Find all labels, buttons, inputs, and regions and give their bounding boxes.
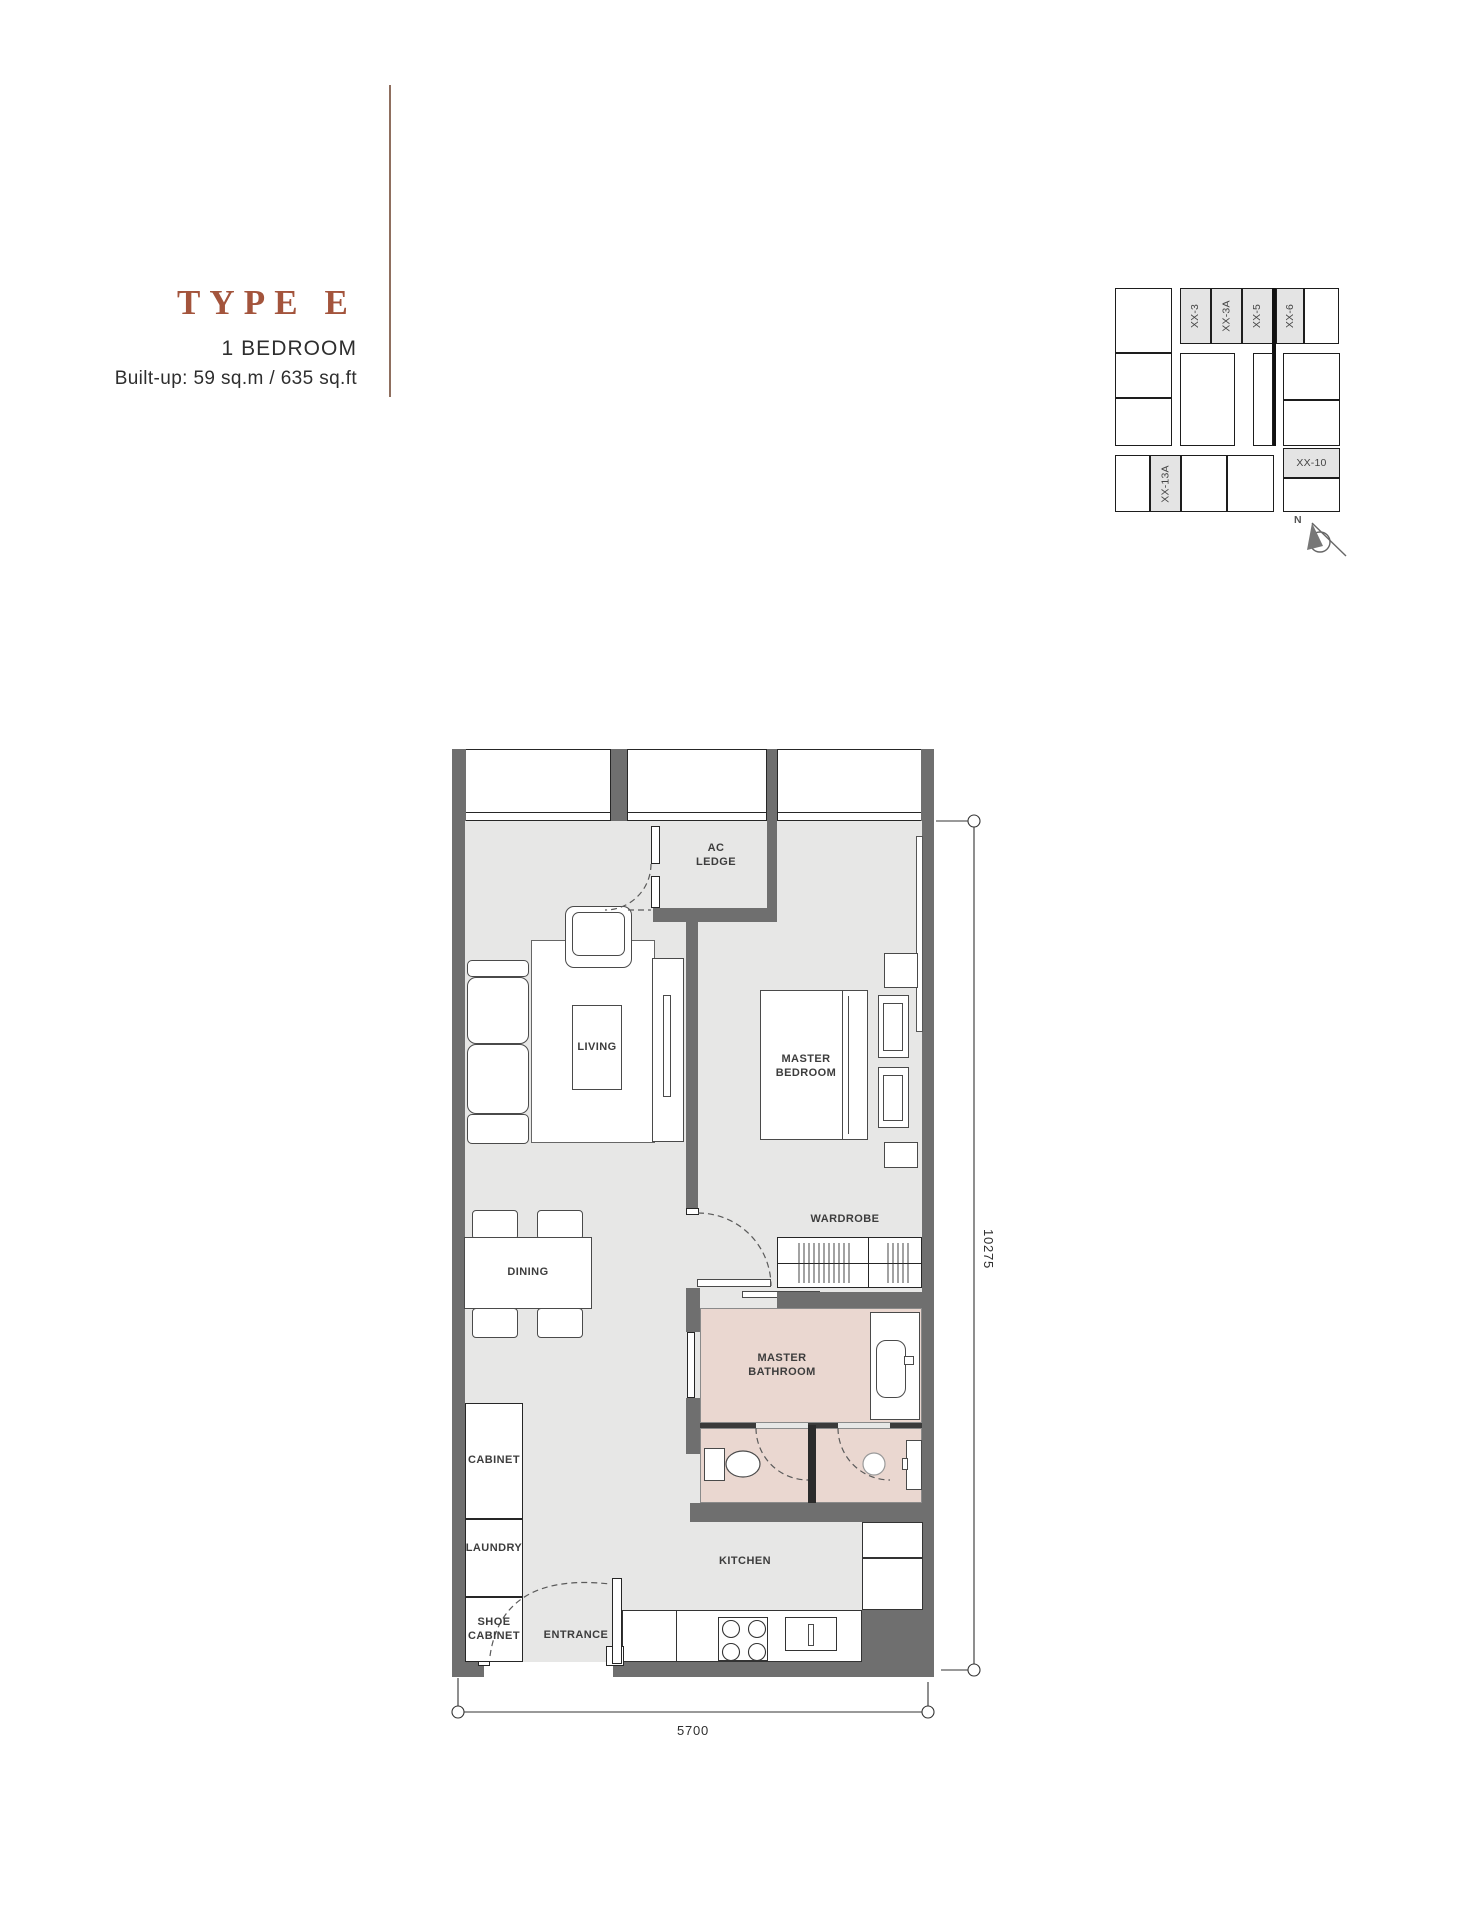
dimension-height: 10275 xyxy=(981,1218,996,1280)
key-plan-cell xyxy=(1115,288,1172,353)
builtup-area: Built-up: 59 sq.m / 635 sq.ft xyxy=(0,368,357,390)
label-kitchen: KITCHEN xyxy=(699,1554,791,1570)
sofa-armrest xyxy=(467,1114,529,1144)
wall-end-cap xyxy=(686,1208,699,1215)
bathroom-wall-bottom xyxy=(690,1503,934,1522)
header-divider xyxy=(389,85,391,397)
kitchen-tall-unit xyxy=(862,1558,923,1610)
dining-chair xyxy=(537,1210,583,1240)
bathroom-door-leaf xyxy=(687,1332,695,1398)
counter-divider xyxy=(676,1611,677,1661)
key-plan-unit-label: XX-5 xyxy=(1252,304,1264,328)
shower-divider-wall xyxy=(808,1425,816,1505)
window-band xyxy=(465,812,611,821)
key-plan-unit-label: XX-13A xyxy=(1160,465,1172,502)
key-plan-cell xyxy=(1253,353,1273,446)
label-ac-ledge: AC LEDGE xyxy=(666,841,766,871)
facade-panel xyxy=(627,749,767,813)
key-plan-unit-xx3a: XX-3A xyxy=(1211,288,1242,344)
north-compass-icon xyxy=(1307,523,1346,556)
key-plan-unit-label: XX-3 xyxy=(1190,304,1202,328)
nightstand-top xyxy=(883,1003,903,1051)
facade-pillar xyxy=(921,749,934,822)
label-living: LIVING xyxy=(572,1005,622,1090)
key-plan-cell xyxy=(1283,400,1340,446)
page-title: TYPE E xyxy=(0,283,357,323)
nightstand-top xyxy=(883,1075,903,1121)
entrance-door-leaf xyxy=(612,1578,622,1664)
bedroom-count: 1 BEDROOM xyxy=(0,337,357,361)
facade-pillar xyxy=(611,749,627,822)
key-plan-unit-xx10: XX-10 xyxy=(1283,448,1340,478)
kitchen-tall-unit xyxy=(862,1522,923,1558)
sink-faucet xyxy=(808,1624,814,1646)
dining-chair xyxy=(472,1210,518,1240)
bathroom-wall xyxy=(777,1292,922,1308)
armchair-seat xyxy=(572,912,625,956)
wall-right xyxy=(922,821,934,1677)
dining-chair xyxy=(537,1308,583,1338)
key-plan-unit-label: XX-3A xyxy=(1221,300,1233,331)
facade-panel xyxy=(465,749,611,813)
key-plan-cell xyxy=(1181,455,1227,512)
ac-ledge-wall xyxy=(767,821,777,921)
window-band xyxy=(777,812,922,821)
label-laundry: LAUNDRY xyxy=(461,1519,527,1579)
vanity-faucet xyxy=(904,1356,914,1365)
facade-pillar xyxy=(452,749,466,822)
stove xyxy=(718,1617,768,1661)
label-wardrobe: WARDROBE xyxy=(795,1212,895,1228)
shower-knob xyxy=(902,1458,908,1470)
north-label: N xyxy=(1294,514,1302,526)
toilet-tank xyxy=(704,1448,725,1481)
sofa-cushion xyxy=(467,977,529,1044)
key-plan-cell xyxy=(1180,353,1235,446)
bedroom-window xyxy=(916,836,923,1032)
label-cabinet: CABINET xyxy=(465,1403,523,1519)
label-master-bathroom: MASTER BATHROOM xyxy=(718,1350,846,1381)
label-master-bedroom: MASTER BEDROOM xyxy=(746,1051,866,1082)
dimension-width: 5700 xyxy=(643,1723,743,1738)
key-plan-cell xyxy=(1304,288,1339,344)
key-plan-cell xyxy=(1227,455,1274,512)
key-plan-unit-label: XX-10 xyxy=(1296,457,1326,469)
label-dining: DINING xyxy=(464,1237,592,1309)
shower-fixture xyxy=(906,1440,922,1490)
bedroom-shelf xyxy=(884,953,918,988)
vanity-basin xyxy=(876,1340,906,1398)
key-plan-cell xyxy=(1115,353,1172,398)
key-plan-unit-xx5: XX-5 xyxy=(1242,288,1273,344)
label-entrance: ENTRANCE xyxy=(530,1628,622,1644)
key-plan-cell xyxy=(1283,478,1340,512)
sofa-armrest xyxy=(467,960,529,977)
key-plan-unit-label: XX-6 xyxy=(1284,304,1296,328)
bathroom-wall-stub xyxy=(686,1288,700,1332)
label-shoe-cabinet: SHOE CABINET xyxy=(465,1597,523,1662)
facade-panel xyxy=(777,749,922,813)
ac-ledge-partition xyxy=(651,826,660,864)
facade-pillar xyxy=(767,749,777,822)
sofa-cushion xyxy=(467,1044,529,1114)
header: TYPE E 1 BEDROOM Built-up: 59 sq.m / 635… xyxy=(0,283,357,390)
bedroom-door-leaf xyxy=(697,1279,771,1287)
bathroom-wall-stub xyxy=(686,1398,700,1454)
wardrobe-divider xyxy=(868,1237,869,1288)
key-plan-unit-xx13a: XX-13A xyxy=(1150,455,1181,512)
bedroom-wall xyxy=(686,922,698,1210)
ac-ledge-wall xyxy=(653,908,777,922)
key-plan-unit-xx3: XX-3 xyxy=(1180,288,1211,344)
wardrobe-midline xyxy=(777,1263,922,1264)
bedroom-shelf xyxy=(884,1142,918,1168)
floor-plan-page: TYPE E 1 BEDROOM Built-up: 59 sq.m / 635… xyxy=(0,0,1470,1915)
key-plan-cell xyxy=(1283,353,1340,400)
key-plan-unit-xx6: XX-6 xyxy=(1276,288,1304,344)
key-plan-cell xyxy=(1115,455,1150,512)
window-band xyxy=(627,812,767,821)
wall-corner-block xyxy=(862,1610,934,1677)
tv xyxy=(663,995,671,1097)
key-plan-cell xyxy=(1115,398,1172,446)
ac-ledge-partition xyxy=(651,876,660,908)
dining-chair xyxy=(472,1308,518,1338)
bathroom-partition xyxy=(700,1423,756,1428)
bathroom-partition xyxy=(890,1423,922,1428)
